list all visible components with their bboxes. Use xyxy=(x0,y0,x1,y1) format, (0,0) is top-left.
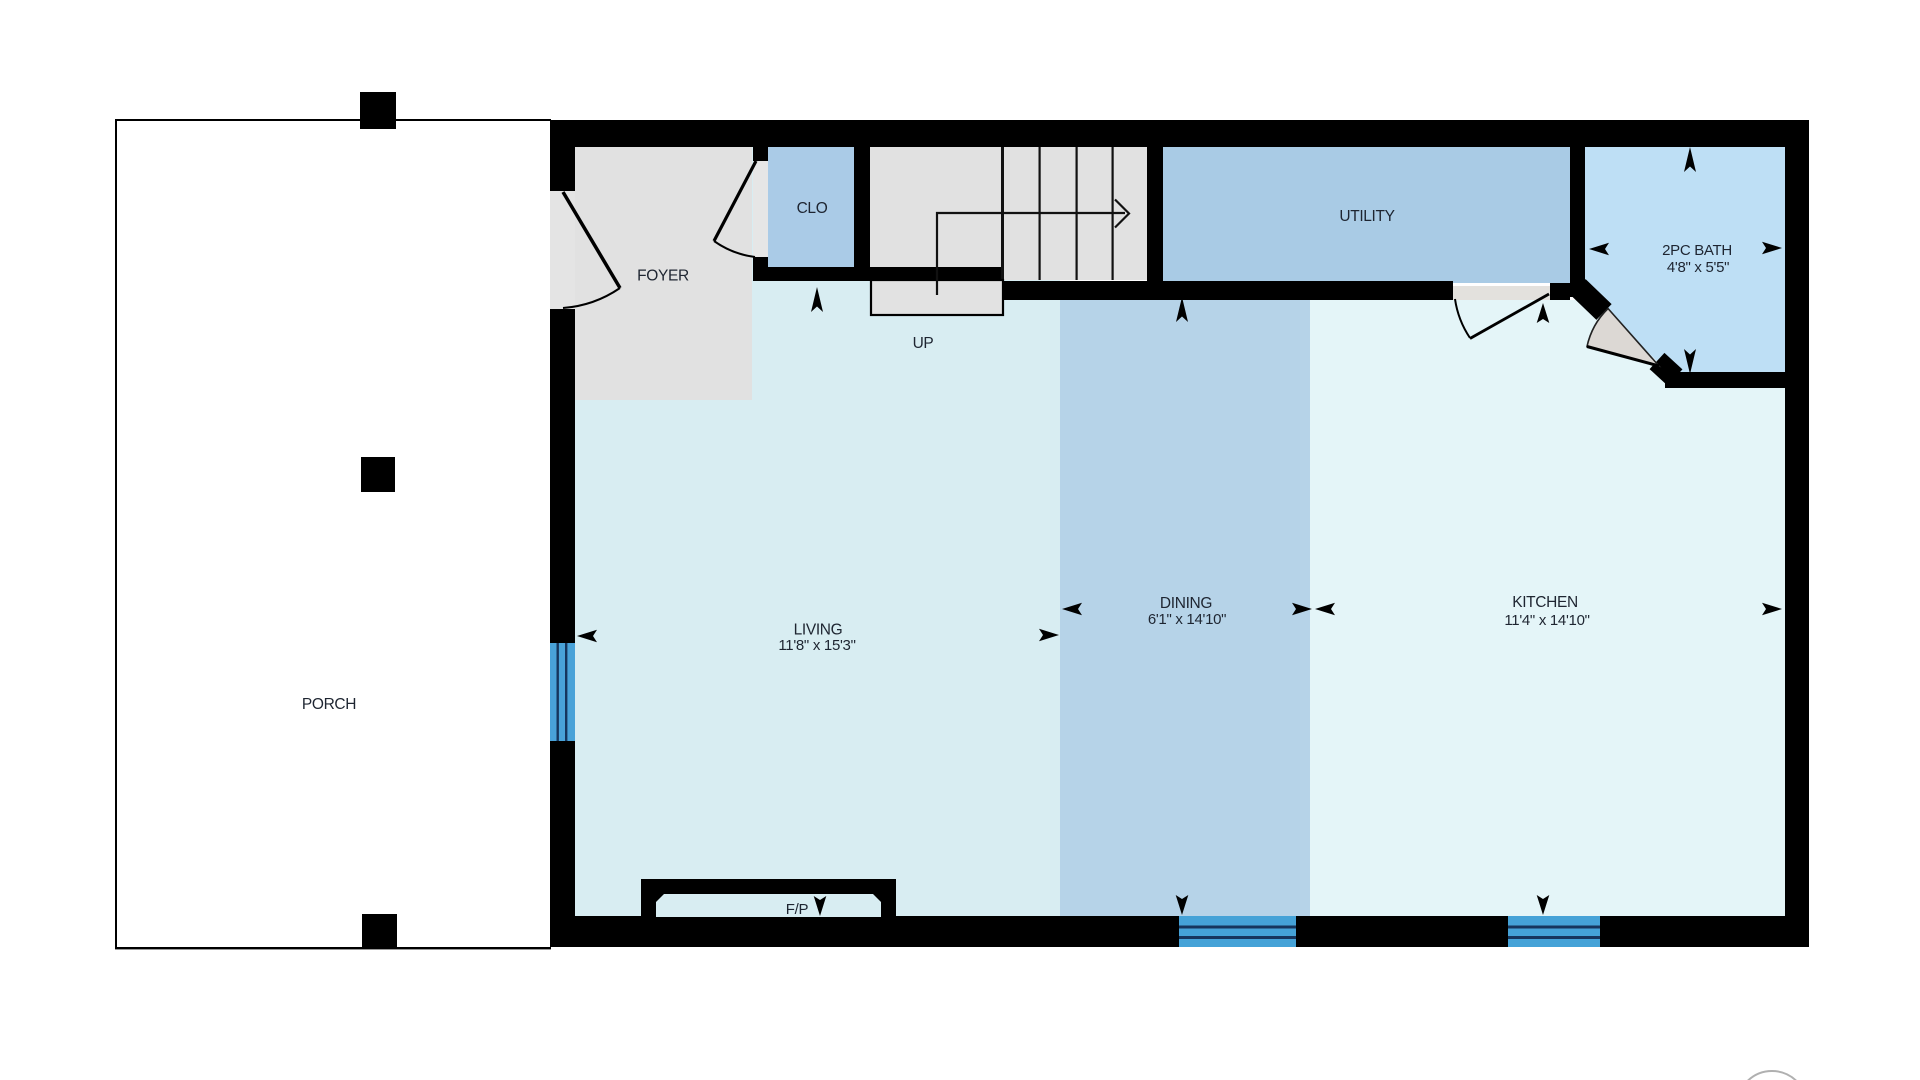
svg-text:KITCHEN: KITCHEN xyxy=(1512,594,1578,611)
svg-text:PORCH: PORCH xyxy=(302,696,356,713)
svg-text:UP: UP xyxy=(913,335,934,352)
svg-text:F/P: F/P xyxy=(786,901,809,918)
svg-text:UTILITY: UTILITY xyxy=(1339,208,1394,225)
svg-text:4'8" x 5'5": 4'8" x 5'5" xyxy=(1667,259,1729,276)
svg-text:LIVING: LIVING xyxy=(794,622,843,639)
svg-text:11'8" x 15'3": 11'8" x 15'3" xyxy=(778,637,855,654)
svg-text:11'4" x 14'10": 11'4" x 14'10" xyxy=(1504,612,1589,629)
svg-text:6'1" x 14'10": 6'1" x 14'10" xyxy=(1148,611,1226,628)
svg-text:FOYER: FOYER xyxy=(637,268,689,285)
svg-text:DINING: DINING xyxy=(1160,595,1212,612)
svg-text:CLO: CLO xyxy=(797,200,828,217)
svg-text:2PC BATH: 2PC BATH xyxy=(1662,242,1732,259)
